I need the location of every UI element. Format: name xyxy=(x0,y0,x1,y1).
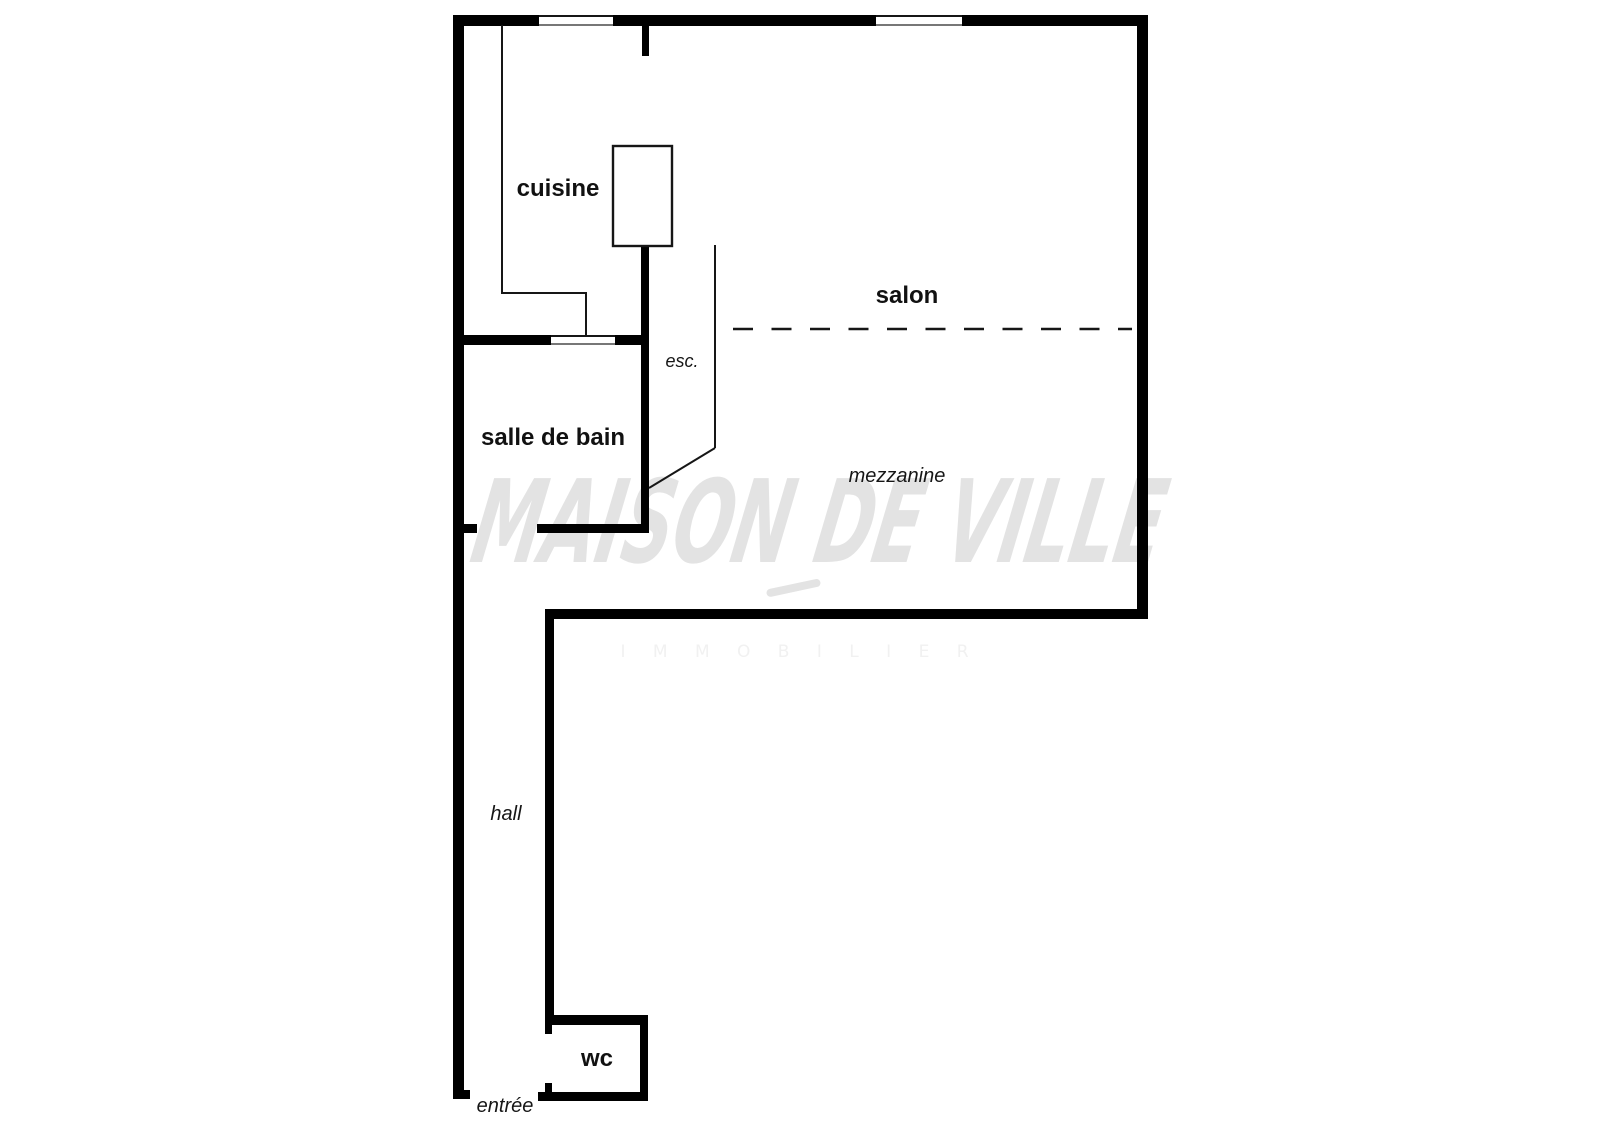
right-exterior-wall xyxy=(1137,15,1148,619)
wc-door-jamb-bottom xyxy=(545,1083,552,1092)
watermark: MAISON DE VILLE I M M O B I L I E R xyxy=(463,456,1177,662)
left-exterior-wall xyxy=(453,15,464,1099)
wc-bottom-wall xyxy=(538,1092,648,1101)
room-label-cuisine: cuisine xyxy=(517,175,600,202)
bathroom-top-wall-right xyxy=(615,335,649,345)
room-label-mezzanine: mezzanine xyxy=(849,465,946,487)
kitchen-bathroom-right-wall xyxy=(641,246,649,533)
bathroom-top-wall-left xyxy=(464,335,551,345)
room-label-salle-de-bain: salle de bain xyxy=(481,424,625,451)
kitchen-column-fixture xyxy=(613,146,672,246)
floor-plan: MAISON DE VILLE I M M O B I L I E R cuis… xyxy=(0,0,1600,1131)
wc-door-jamb-top xyxy=(545,1025,552,1034)
kitchen-entry-wall-stub xyxy=(642,25,649,56)
room-label-entree: entrée xyxy=(477,1095,534,1117)
left-wall-bottom-foot xyxy=(453,1090,470,1099)
mezzanine-bottom-wall xyxy=(545,609,1148,619)
floorplan-page: MAISON DE VILLE I M M O B I L I E R cuis… xyxy=(0,0,1600,1131)
room-label-salon: salon xyxy=(876,282,939,309)
bathroom-bottom-wall-stub xyxy=(464,524,477,533)
room-label-esc: esc. xyxy=(665,351,698,371)
hall-right-wall xyxy=(545,609,554,1025)
watermark-text: MAISON DE VILLE xyxy=(463,456,1177,590)
watermark-subtext: I M M O B I L I E R xyxy=(620,642,979,662)
room-label-wc: wc xyxy=(580,1045,613,1072)
wc-right-wall xyxy=(640,1015,648,1101)
room-label-hall: hall xyxy=(490,803,522,825)
wc-top-wall xyxy=(545,1015,648,1025)
bathroom-bottom-wall-main xyxy=(537,524,649,533)
